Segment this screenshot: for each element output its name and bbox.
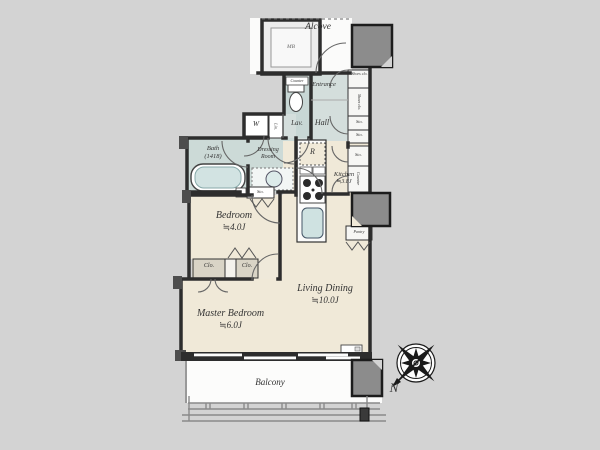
storage-cell-1 [348, 116, 371, 130]
living-corner-unit [341, 345, 362, 353]
compass-rose [392, 344, 435, 387]
lav-counter-box [286, 77, 308, 85]
pantry-cell [346, 226, 372, 240]
toilet-bowl [290, 93, 303, 112]
kitchen-sink [302, 208, 323, 238]
window-band [181, 352, 372, 361]
shoes-closet-label-b: Shoes clo. [357, 94, 362, 110]
closet-mid-cell [225, 259, 236, 278]
meter-box [262, 20, 320, 74]
bedroom-closets [193, 259, 258, 278]
linen-label: Lin. [274, 123, 279, 130]
washer-space [244, 115, 268, 136]
wash-basin [266, 171, 282, 187]
railing-post [360, 408, 369, 421]
master-bedroom-floor [181, 279, 280, 353]
closet-1 [193, 259, 225, 278]
pillar-mid-right [352, 193, 390, 226]
counter-label: Counter [356, 172, 361, 185]
floor-plan: Alcove MB Entrance Hall Lav. Counter Sho… [0, 0, 600, 450]
storage-cell-2 [348, 130, 371, 143]
pillar-top-right [352, 25, 392, 67]
kitchen-small-cabinet-2 [313, 167, 325, 174]
bathtub-inner [195, 167, 241, 188]
floor-plan-drawing [0, 0, 600, 450]
storage-cell-3 [348, 146, 369, 166]
